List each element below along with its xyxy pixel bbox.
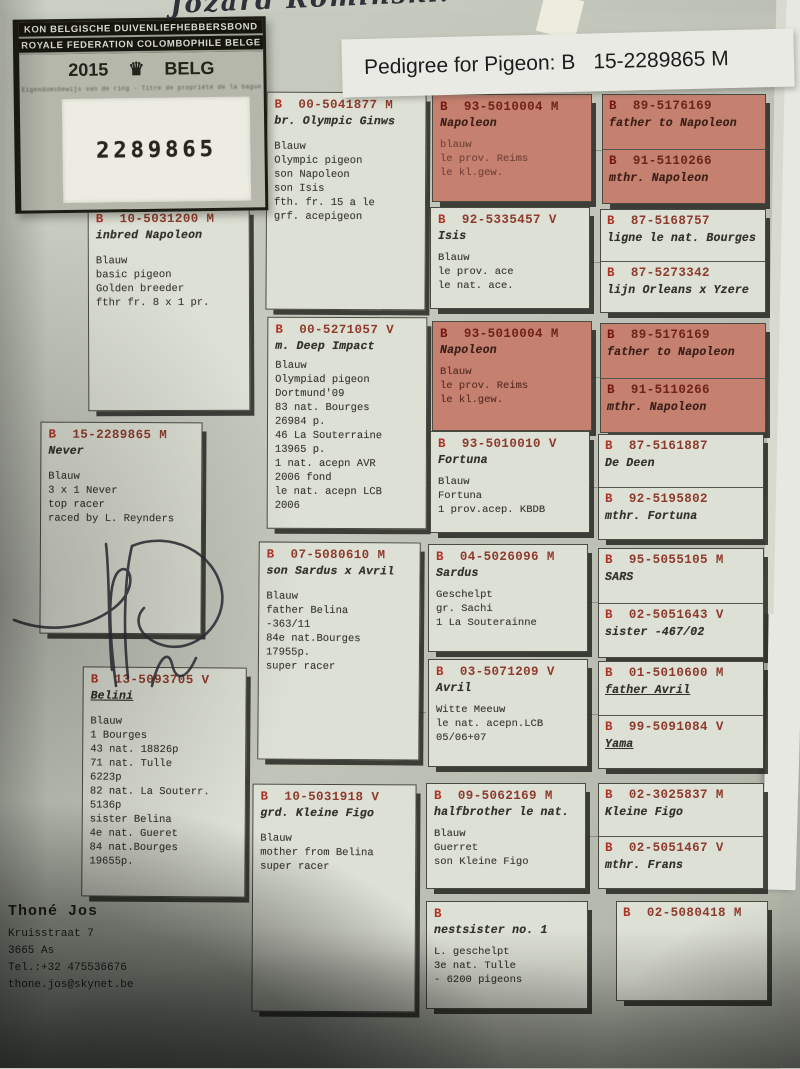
father-name: inbred Napoleon <box>96 229 242 243</box>
country-prefix: B <box>605 608 613 622</box>
connector-line <box>584 836 598 837</box>
great-grandparent-ring: 93-5010004 M <box>464 100 559 114</box>
stamp-year: 2015 <box>68 59 108 81</box>
pair-name: mthr. Napoleon <box>609 172 759 185</box>
father-ring: 10-5031200 M <box>120 212 215 226</box>
pedigree-box-grandparent-2: B00-5271057 V m. Deep Impact Blauw Olymp… <box>267 317 428 530</box>
country-prefix: B <box>607 383 615 397</box>
country-prefix: B <box>436 665 444 679</box>
pedigree-pair-1: B89-5176169 father to Napoleon B91-51102… <box>602 94 766 204</box>
page-title: Pedigree for Pigeon: B 15-2289865 M <box>341 28 794 97</box>
pedigree-box-great-grandparent-4: B93-5010010 V Fortuna Blauw Fortuna 1 pr… <box>430 431 590 533</box>
pair-ring: 87-5273342 <box>631 266 710 280</box>
country-prefix: B <box>434 907 442 921</box>
pair-ring: 91-5110266 <box>633 154 712 168</box>
country-prefix: B <box>609 154 617 168</box>
great-grandparent-details: Blauw le prov. Reims le kl.gew. <box>440 365 584 407</box>
pedigree-box-grandparent-3: B07-5080610 M son Sardus x Avril Blauw f… <box>257 541 421 760</box>
pedigree-box-father: B10-5031200 M inbred Napoleon Blauw basi… <box>88 206 251 412</box>
great-grandparent-ring: 93-5010010 V <box>462 437 557 451</box>
pair-name: sister -467/02 <box>605 626 757 639</box>
pair-name: SARS <box>605 571 757 584</box>
ring-number: 2289865 <box>96 136 217 163</box>
pair-name: mthr. Fortuna <box>605 510 757 523</box>
owner-contact-lines: Kruisstraat 7 3665 As Tel.:+32 475536676… <box>8 926 133 994</box>
country-prefix: B <box>434 789 442 803</box>
great-grandparent-details: blauw le prov. Reims le kl.gew. <box>440 138 584 180</box>
pedigree-pair-3: B89-5176169 father to Napoleon B91-51102… <box>600 323 766 433</box>
country-prefix: B <box>48 428 56 442</box>
country-prefix: B <box>438 437 446 451</box>
pair-name: mthr. Frans <box>605 859 757 872</box>
grandparent-name: grd. Kleine Figo <box>260 807 408 821</box>
pedigree-box-great-grandparent-1: B93-5010004 M Napoleon blauw le prov. Re… <box>432 94 592 202</box>
page-title-ring: 15-2289865 M <box>593 47 729 74</box>
pair-ring: 01-5010600 M <box>629 666 724 680</box>
country-prefix: B <box>623 906 631 920</box>
great-grandparent-details: Blauw Guerret son Kleine Figo <box>434 827 578 869</box>
pair-ring: 92-5195802 <box>629 492 708 506</box>
great-grandparent-name: Fortuna <box>438 454 582 467</box>
great-grandparent-details: L. geschelpt 3e nat. Tulle - 6200 pigeon… <box>434 945 580 987</box>
pair-ring: 89-5176169 <box>633 99 712 113</box>
pedigree-pair-2: B87-5168757 ligne le nat. Bourges B87-52… <box>600 209 766 313</box>
page-title-label: Pedigree for Pigeon: B <box>364 51 576 80</box>
pair-ring: 89-5176169 <box>631 328 710 342</box>
ring-number-label: 2289865 <box>62 96 251 203</box>
pair-ring: 87-5168757 <box>631 214 710 228</box>
great-grandparent-name: Napoleon <box>440 117 584 130</box>
pedigree-box-great-grandparent-6: B03-5071209 V Avril Witte Meeuw le nat. … <box>428 659 588 767</box>
country-prefix: B <box>605 553 613 567</box>
country-prefix: B <box>436 550 444 564</box>
owner-name: Thoné Jos <box>8 903 133 920</box>
great-grandparent-name: Isis <box>438 230 582 243</box>
pair-ring: 91-5110266 <box>631 383 710 397</box>
pair-name: father Avril <box>605 684 757 697</box>
pair-name: lijn Orleans x Yzere <box>607 284 759 297</box>
great-grandparent-ring: 04-5026096 M <box>460 550 555 564</box>
country-prefix: B <box>605 492 613 506</box>
country-prefix: B <box>274 98 282 112</box>
pair-name: ligne le nat. Bourges <box>607 232 759 245</box>
country-prefix: B <box>267 547 275 561</box>
crown-icon: ♛ <box>128 58 144 79</box>
great-grandparent-details: Geschelpt gr. Sachi 1 La Souterainne <box>436 588 580 630</box>
country-prefix: B <box>609 99 617 113</box>
grandparent-details: Blauw mother from Belina super racer <box>260 832 408 875</box>
father-details: Blauw basic pigeon Golden breeder fthr f… <box>96 254 242 311</box>
grandparent-details: Blauw Olympic pigeon son Napoleon son Is… <box>274 140 418 225</box>
pedigree-box-mother: B13-5093705 V Belini Blauw 1 Bourges 43 … <box>81 666 247 897</box>
pair-name: De Deen <box>605 457 757 470</box>
grandparent-ring: 00-5041877 M <box>298 98 393 112</box>
country-prefix: B <box>605 788 613 802</box>
pedigree-pair-7: B02-3025837 M Kleine Figo B02-5051467 V … <box>598 783 764 889</box>
great-grandparent-name: halfbrother le nat. <box>434 806 578 819</box>
country-prefix: B <box>96 212 104 226</box>
great-grandparent-name: Avril <box>436 682 580 695</box>
great-grandparent-name: Napoleon <box>440 344 584 357</box>
country-prefix: B <box>440 327 448 341</box>
great-grandparent-details: Blauw Fortuna 1 prov.acep. KBDB <box>438 475 582 517</box>
pair-ring: 99-5091084 V <box>629 720 724 734</box>
pair-ring: 87-5161887 <box>629 439 708 453</box>
country-prefix: B <box>440 100 448 114</box>
grandparent-details: Blauw Olympiad pigeon Dortmund'09 83 nat… <box>275 359 420 514</box>
subject-name: Never <box>48 445 194 459</box>
ring-ownership-card: KON BELGISCHE DUIVENLIEFHEBBERSBOND ROYA… <box>13 16 269 214</box>
great-grandparent-ring: 93-5010004 M <box>464 327 559 341</box>
great-grandparent-ring: 09-5062169 M <box>458 789 553 803</box>
pedigree-pair-6: B01-5010600 M father Avril B99-5091084 V… <box>598 661 764 769</box>
pedigree-box-great-grandparent-5: B04-5026096 M Sardus Geschelpt gr. Sachi… <box>428 544 588 652</box>
great-grandparent-name: nestsister no. 1 <box>434 924 580 937</box>
grandparent-ring: 00-5271057 V <box>299 323 394 337</box>
country-prefix: B <box>438 213 446 227</box>
pair-ring: 02-3025837 M <box>629 788 724 802</box>
great-grandparent-name: Sardus <box>436 567 580 580</box>
grandparent-name: m. Deep Impact <box>275 340 419 354</box>
pedigree-box-great-grandparent-2: B92-5335457 V Isis Blauw le prov. ace le… <box>430 207 590 309</box>
pair-name: Kleine Figo <box>605 806 757 819</box>
great-grandparent-details: Blauw le prov. ace le nat. ace. <box>438 251 582 293</box>
pair-name: Yama <box>605 738 757 751</box>
great-grandparent-ring: 92-5335457 V <box>462 213 557 227</box>
pair-name: father to Napoleon <box>607 346 759 359</box>
country-prefix: B <box>605 841 613 855</box>
subject-ring: 15-2289865 M <box>72 428 167 442</box>
pedigree-box-great-grandparent-3: B93-5010004 M Napoleon Blauw le prov. Re… <box>432 321 592 431</box>
country-prefix: B <box>260 790 268 804</box>
country-prefix: B <box>605 720 613 734</box>
great-grandparent-ring: 03-5071209 V <box>460 665 555 679</box>
grandparent-ring: 07-5080610 M <box>291 548 386 563</box>
stamp-country: BELG <box>164 57 214 79</box>
pair-name: mthr. Napoleon <box>607 401 759 414</box>
pair-ring: 95-5055105 M <box>629 553 724 567</box>
grandparent-ring: 10-5031918 V <box>284 790 379 804</box>
pair-ring: 02-5051467 V <box>629 841 724 855</box>
pedigree-box-great-grandparent-8: B nestsister no. 1 L. geschelpt 3e nat. … <box>426 901 588 1009</box>
pair-ring: 02-5051643 V <box>629 608 724 622</box>
grandparent-name: br. Olympic Ginws <box>274 115 418 129</box>
pair-name: father to Napoleon <box>609 117 759 130</box>
pedigree-box-grandparent-1: B00-5041877 M br. Olympic Ginws Blauw Ol… <box>265 92 426 311</box>
pedigree-pair-5: B95-5055105 M SARS B02-5051643 V sister … <box>598 548 764 658</box>
country-prefix: B <box>605 439 613 453</box>
grandparent-details: Blauw father Belina -363/11 84e nat.Bour… <box>266 589 413 674</box>
pair-ring: 02-5080418 M <box>647 906 742 920</box>
country-prefix: B <box>605 666 613 680</box>
mother-details: Blauw 1 Bourges 43 nat. 18826p 71 nat. T… <box>89 714 238 869</box>
owner-signature <box>10 500 260 700</box>
country-prefix: B <box>607 328 615 342</box>
country-prefix: B <box>275 323 283 337</box>
grandparent-name: son Sardus x Avril <box>267 564 413 578</box>
pedigree-box-great-grandparent-7: B09-5062169 M halfbrother le nat. Blauw … <box>426 783 586 889</box>
country-prefix: B <box>607 214 615 228</box>
country-prefix: B <box>607 266 615 280</box>
great-grandparent-details: Witte Meeuw le nat. acepn.LCB 05/06+07 <box>436 703 580 745</box>
pedigree-pair-8: B02-5080418 M <box>616 901 768 1001</box>
owner-info: Thoné Jos Kruisstraat 7 3665 As Tel.:+32… <box>8 903 133 994</box>
pedigree-box-grandparent-4: B10-5031918 V grd. Kleine Figo Blauw mot… <box>251 784 416 1013</box>
pedigree-pair-4: B87-5161887 De Deen B92-5195802 mthr. Fo… <box>598 434 764 540</box>
